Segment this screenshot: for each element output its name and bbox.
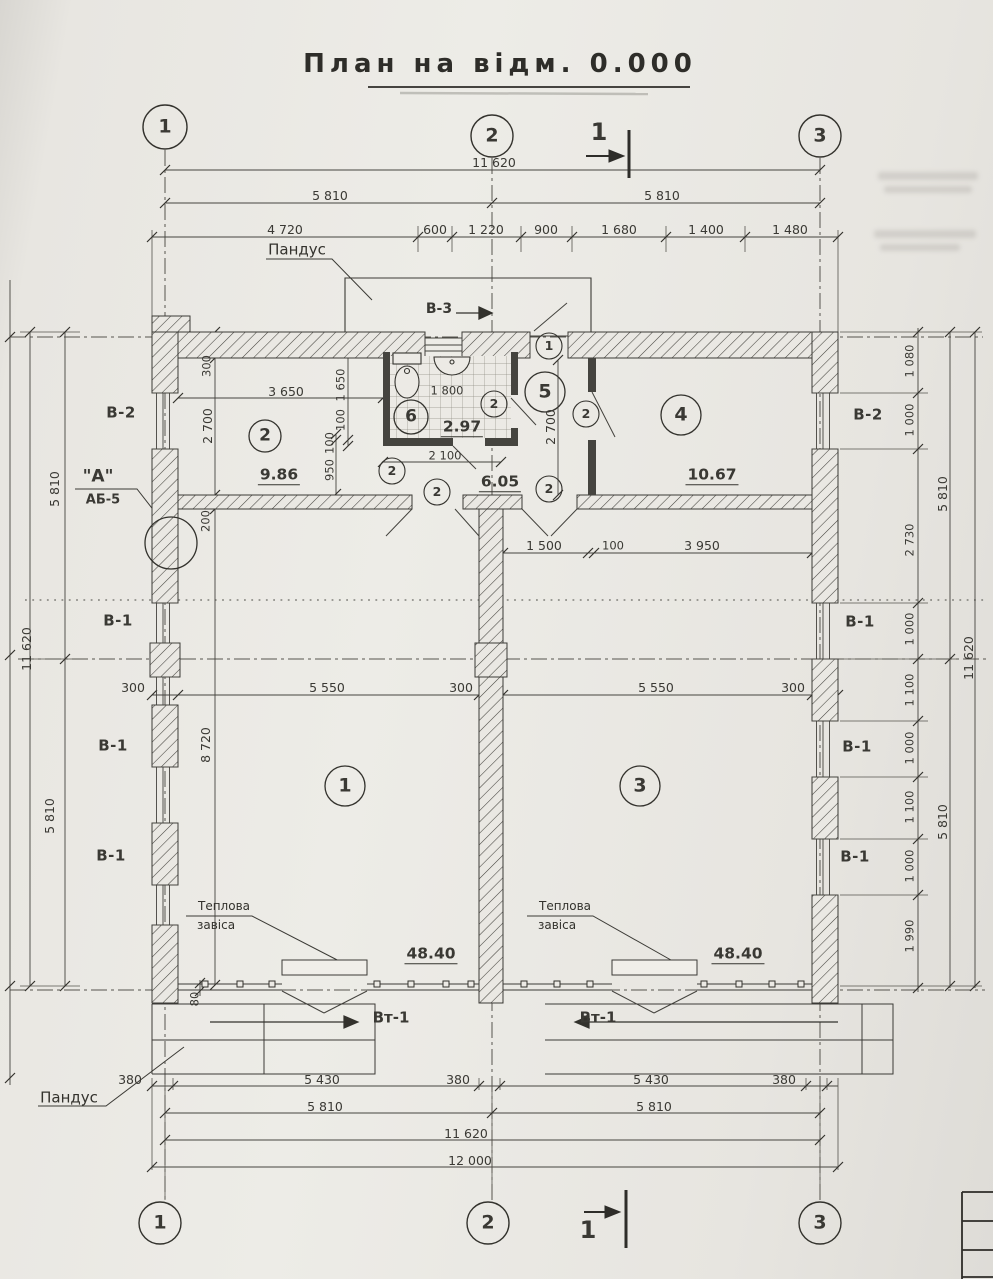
dim-right-chain-2: 1 000 bbox=[904, 404, 916, 437]
porch-outline bbox=[345, 278, 591, 332]
scan-artifact bbox=[884, 186, 972, 193]
dim-right-chain-4: 1 000 bbox=[904, 613, 916, 646]
door-tag-2-b: 2 bbox=[433, 486, 442, 499]
scan-artifact bbox=[880, 244, 960, 251]
thermal-curtain-left-line1: Теплова bbox=[198, 900, 250, 912]
dim-bottom-total: 11 620 bbox=[444, 1128, 488, 1141]
dim-5430-1: 5 430 bbox=[304, 1074, 340, 1087]
wall-v1-right-3: В-1 bbox=[840, 850, 870, 865]
dim-right-chain-8: 1 000 bbox=[904, 850, 916, 883]
room-4-area: 10.67 bbox=[685, 467, 738, 485]
dim-left-total: 11 620 bbox=[21, 627, 34, 671]
door-tag-2-d: 2 bbox=[545, 483, 554, 496]
dim-left-half-lower: 5 810 bbox=[44, 798, 57, 834]
room-5-number: 5 bbox=[538, 383, 551, 402]
dim-right-chain-5: 1 100 bbox=[904, 674, 916, 707]
room-3-number: 3 bbox=[633, 777, 646, 796]
door-tag-2-e: 2 bbox=[582, 408, 591, 421]
thermal-curtain-right-line2: завіса bbox=[538, 919, 576, 931]
dim-2700-room5: 2 700 bbox=[545, 409, 558, 445]
door-vt1-left: Вт-1 bbox=[373, 1011, 410, 1026]
dim-300-row-1: 300 bbox=[121, 682, 145, 695]
door-tag-1: 1 bbox=[545, 340, 554, 353]
room-1-number: 1 bbox=[338, 777, 351, 796]
wall-v1-left-2: В-1 bbox=[98, 739, 128, 754]
dim-3650: 3 650 bbox=[268, 386, 304, 399]
dim-2100: 2 100 bbox=[429, 450, 462, 462]
dim-1800: 1 800 bbox=[431, 385, 464, 397]
ramp-label-bottom: Пандус bbox=[40, 1091, 98, 1106]
dim-300-row-3: 300 bbox=[781, 682, 805, 695]
room-1-area: 48.40 bbox=[404, 946, 457, 964]
wall-v1-left-3: В-1 bbox=[96, 849, 126, 864]
detail-a-label: "А" bbox=[83, 469, 114, 486]
dim-top-seg-1: 4 720 bbox=[267, 224, 303, 237]
axis-bubble-3-top: 3 bbox=[813, 127, 826, 146]
dim-right-chain-9: 1 990 bbox=[904, 920, 916, 953]
room-6-number: 6 bbox=[405, 409, 417, 426]
dim-top-seg-6: 1 400 bbox=[688, 224, 724, 237]
dim-1500: 1 500 bbox=[526, 540, 562, 553]
dim-top-seg-4: 900 bbox=[534, 224, 558, 237]
dim-200-left: 200 bbox=[200, 510, 212, 532]
section-label-top: 1 bbox=[591, 120, 608, 144]
dim-right-total: 11 620 bbox=[963, 636, 976, 680]
dim-right-half-upper: 5 810 bbox=[937, 476, 950, 512]
dim-100-b: 100 bbox=[324, 432, 336, 454]
axis-bubble-2-top: 2 bbox=[485, 127, 498, 146]
dim-bottom-half-left: 5 810 bbox=[307, 1101, 343, 1114]
door-vt1-right: Вт-1 bbox=[580, 1011, 617, 1026]
ramp-label-top: Пандус bbox=[268, 243, 326, 258]
room-2-number: 2 bbox=[259, 428, 271, 445]
dim-right-chain-7: 1 100 bbox=[904, 791, 916, 824]
dim-950: 950 bbox=[324, 459, 336, 481]
hall-area: 6.05 bbox=[479, 474, 521, 492]
dim-300-left: 300 bbox=[201, 355, 213, 377]
dim-5550-left: 5 550 bbox=[309, 682, 345, 695]
dim-right-chain-6: 1 000 bbox=[904, 732, 916, 765]
floor-plan-sheet: План на відм. 0.000 1 2 3 1 2 3 1 1 11 6… bbox=[0, 0, 993, 1279]
dim-100-c: 100 bbox=[602, 540, 624, 552]
room-2-area: 9.86 bbox=[258, 467, 300, 485]
ramp-arrows bbox=[210, 1016, 838, 1028]
scan-artifact bbox=[874, 230, 976, 238]
dim-top-half-right: 5 810 bbox=[644, 190, 680, 203]
dim-8720: 8 720 bbox=[200, 727, 213, 763]
room-4-number: 4 bbox=[674, 406, 687, 425]
dim-top-seg-3: 1 220 bbox=[468, 224, 504, 237]
thermal-curtain-right-line1: Теплова bbox=[539, 900, 591, 912]
dim-right-chain-1: 1 080 bbox=[904, 345, 916, 378]
axis-bubble-1-bottom: 1 bbox=[153, 1214, 166, 1233]
thermal-curtain-left-line2: завіса bbox=[197, 919, 235, 931]
section-label-bottom: 1 bbox=[580, 1218, 597, 1242]
v3-arrow bbox=[456, 307, 492, 319]
ramps bbox=[152, 1004, 893, 1074]
dim-3950: 3 950 bbox=[684, 540, 720, 553]
title-underline bbox=[368, 87, 690, 94]
wall-v1-right-2: В-1 bbox=[842, 740, 872, 755]
dim-1650: 1 650 bbox=[335, 369, 347, 402]
axis-bubble-3-bottom: 3 bbox=[813, 1214, 826, 1233]
toilet bbox=[393, 353, 421, 398]
dim-bottom-half-right: 5 810 bbox=[636, 1101, 672, 1114]
axis-bubble-2-bottom: 2 bbox=[481, 1214, 494, 1233]
wall-v2-right: В-2 bbox=[853, 408, 883, 423]
dim-bottom-overall: 12 000 bbox=[448, 1155, 492, 1168]
dim-top-seg-5: 1 680 bbox=[601, 224, 637, 237]
dim-5550-right: 5 550 bbox=[638, 682, 674, 695]
dim-380-1: 380 bbox=[118, 1074, 142, 1087]
wall-v2-left: В-2 bbox=[106, 406, 136, 421]
title-block-fragment bbox=[962, 1192, 993, 1279]
dim-380-3: 380 bbox=[772, 1074, 796, 1087]
dim-380-2: 380 bbox=[446, 1074, 470, 1087]
door-tag-2-a: 2 bbox=[388, 465, 397, 478]
scan-artifact bbox=[878, 172, 978, 180]
dim-top-total: 11 620 bbox=[472, 157, 516, 170]
dim-100-a: 100 bbox=[335, 409, 347, 431]
dim-2700-left: 2 700 bbox=[202, 408, 215, 444]
dim-80: 80 bbox=[189, 992, 201, 1007]
v3-label: В-3 bbox=[426, 302, 452, 316]
wall-v1-right-1: В-1 bbox=[845, 615, 875, 630]
door-tag-2-c: 2 bbox=[490, 398, 499, 411]
dim-top-seg-2: 600 bbox=[423, 224, 447, 237]
detail-ab5-label: АБ-5 bbox=[86, 494, 120, 507]
room-6-area: 2.97 bbox=[441, 419, 483, 437]
dim-right-half-lower: 5 810 bbox=[937, 804, 950, 840]
floor-plan-drawing bbox=[0, 0, 993, 1279]
room-3-area: 48.40 bbox=[711, 946, 764, 964]
dim-5430-2: 5 430 bbox=[633, 1074, 669, 1087]
dim-top-seg-7: 1 480 bbox=[772, 224, 808, 237]
dim-top-half-left: 5 810 bbox=[312, 190, 348, 203]
axis-bubble-1-top: 1 bbox=[158, 118, 171, 137]
page-title: План на відм. 0.000 bbox=[303, 51, 697, 77]
dim-300-row-2: 300 bbox=[449, 682, 473, 695]
wall-v1-left-1: В-1 bbox=[103, 614, 133, 629]
dim-left-half-upper: 5 810 bbox=[49, 471, 62, 507]
dim-right-chain-3: 2 730 bbox=[904, 524, 916, 557]
